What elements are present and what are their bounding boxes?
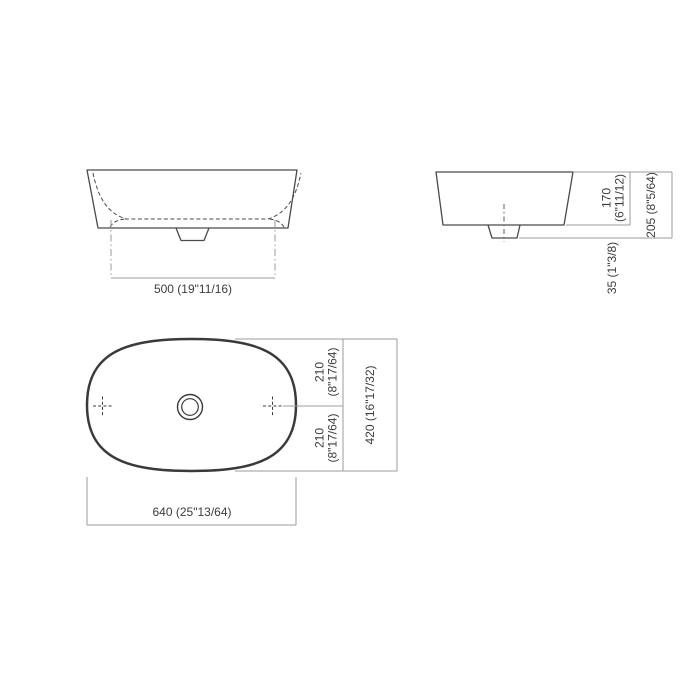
plan-width-dimension-label: 640 (25"13/64): [153, 506, 232, 519]
plan-lower-half-mm: 210: [314, 414, 327, 463]
plan-view-outline: [87, 339, 296, 471]
side-drain-height-value: 35 (1"3/8): [606, 242, 619, 294]
side-basin-body: [436, 172, 573, 225]
front-drain-fitting: [176, 228, 209, 241]
technical-drawing-canvas: [0, 0, 700, 700]
front-width-value: 500 (19"11/16): [154, 283, 232, 296]
plan-upper-half-mm: 210: [314, 348, 327, 397]
plan-lower-half-in: (8"17/64): [326, 414, 339, 463]
front-inner-wall-left: [110, 219, 126, 227]
plan-view-dimension-lines: [87, 339, 397, 525]
side-view-outline: [436, 172, 573, 238]
plan-total-depth-label: 420 (16"17/32): [364, 366, 377, 445]
side-total-height-dimension-label: 205 (8"5/64): [645, 172, 658, 238]
front-view-outline: [87, 170, 297, 241]
front-view-dimension-lines: [111, 220, 275, 278]
front-view-hidden-lines: [93, 173, 301, 227]
side-total-height-value: 205 (8"5/64): [645, 172, 658, 238]
side-rim-height-in: (6"11/12): [613, 174, 626, 222]
plan-basin-rim: [87, 339, 296, 471]
side-rim-height-dimension-label: 170 (6"11/12): [601, 174, 626, 222]
plan-upper-half-depth-label: 210 (8"17/64): [314, 348, 339, 397]
plan-lower-half-depth-label: 210 (8"17/64): [314, 414, 339, 463]
side-drain-height-dimension-label: 35 (1"3/8): [606, 242, 619, 294]
washbasin-spec-drawing: 500 (19"11/16) 170 (6"11/12) 205 (8"5/64…: [0, 0, 700, 700]
plan-width-value: 640 (25"13/64): [153, 506, 232, 519]
plan-upper-half-in: (8"17/64): [326, 348, 339, 397]
front-width-dimension-label: 500 (19"11/16): [154, 283, 232, 296]
side-rim-height-mm: 170: [601, 174, 614, 222]
front-inner-bowl-contour: [93, 173, 301, 219]
plan-drain-inner-circle: [182, 399, 199, 416]
plan-total-depth-value: 420 (16"17/32): [364, 366, 377, 445]
front-inner-wall-right: [268, 219, 284, 227]
